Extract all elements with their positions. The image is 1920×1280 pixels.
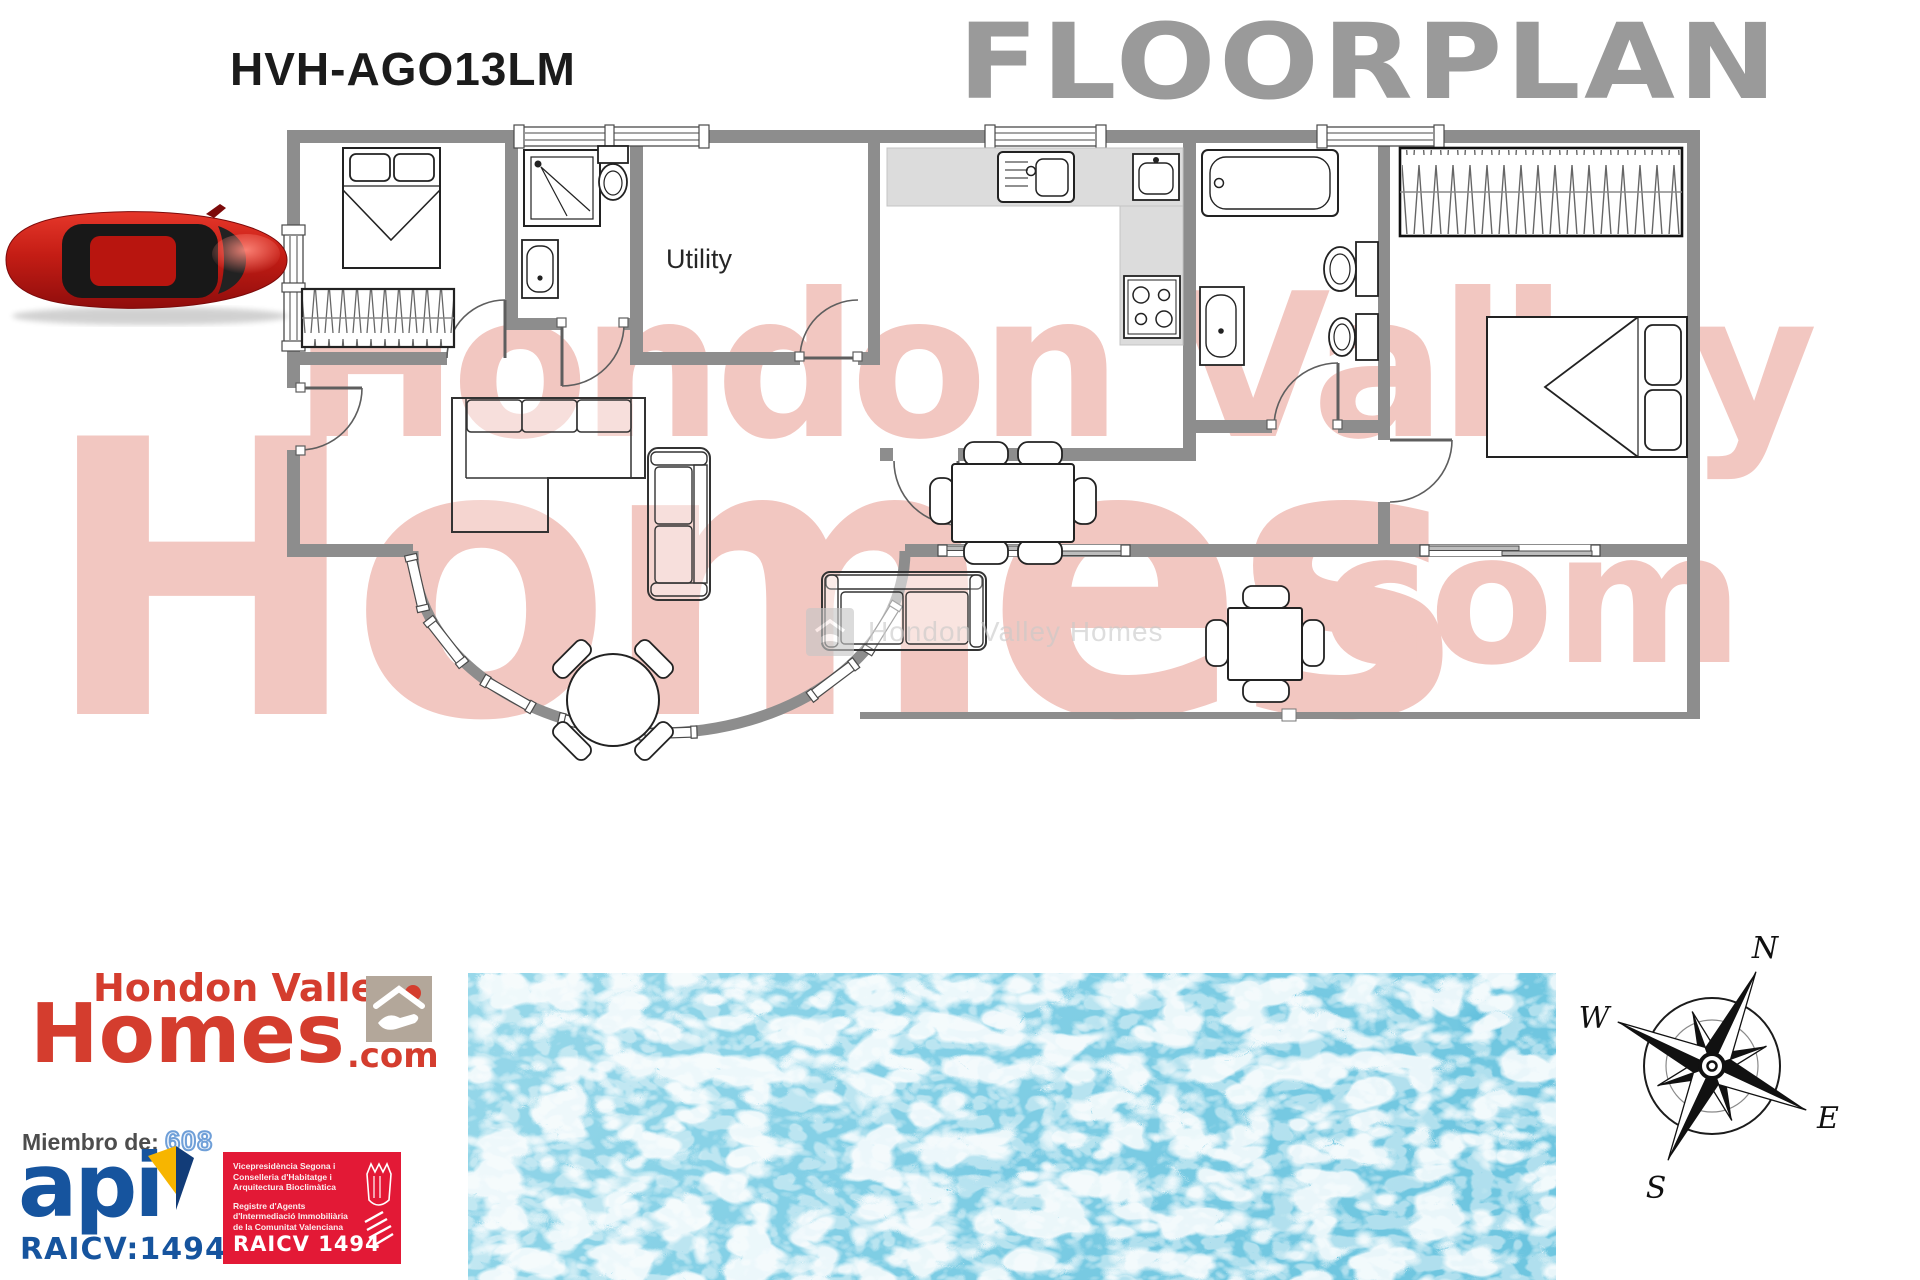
corner-sofa xyxy=(452,398,645,532)
sink-2 xyxy=(1200,287,1244,365)
kitchen-sink-drainer xyxy=(998,152,1074,202)
compass-north-label: N xyxy=(1751,931,1780,966)
bedroom-1 xyxy=(302,148,454,347)
master-bedroom xyxy=(1400,148,1687,457)
api-logo: api xyxy=(18,1146,162,1225)
bidet xyxy=(1329,314,1378,360)
terrace-table xyxy=(1206,586,1324,702)
sink-1 xyxy=(522,240,558,298)
door-bathroom2 xyxy=(1267,363,1342,429)
living-room xyxy=(452,398,1096,600)
raicv-number: RAICV:1494 xyxy=(20,1232,227,1267)
shower-room xyxy=(522,146,628,298)
wardrobe-1 xyxy=(302,289,454,347)
door-master-bedroom xyxy=(1390,440,1452,502)
toilet-1 xyxy=(598,146,628,200)
compass-rose: N W E S xyxy=(1575,925,1865,1225)
conservatory xyxy=(550,637,676,763)
center-watermark: Hondon Valley Homes xyxy=(806,608,1164,656)
page-title: FLOORPLAN xyxy=(958,10,1780,114)
door-shower-room xyxy=(557,318,628,386)
door-entrance xyxy=(296,383,362,455)
api-flag-icon xyxy=(146,1146,196,1226)
window-top-2 xyxy=(985,125,1106,148)
compass-east-label: E xyxy=(1816,1101,1839,1136)
car-roof xyxy=(90,236,176,286)
floorplan-drawing: Utility xyxy=(270,118,1720,778)
watermark-center-text: Hondon Valley Homes xyxy=(868,616,1164,648)
double-bed-master xyxy=(1487,317,1687,457)
compass-south-label: S xyxy=(1646,1171,1667,1206)
watermark-house-icon xyxy=(806,608,854,656)
window-top-3 xyxy=(1317,125,1444,148)
logo-dotcom: .com xyxy=(347,1036,439,1076)
door-utility xyxy=(795,300,862,361)
door-bedroom1 xyxy=(447,300,505,358)
toilet-2 xyxy=(1324,242,1378,296)
logo-homes: Homes xyxy=(30,994,345,1076)
car-shadow xyxy=(12,307,288,325)
window-top-1 xyxy=(514,125,709,148)
round-table xyxy=(567,654,659,746)
flyer-canvas: Hondon Valley Homes .com HVH-AGO13LM FLO… xyxy=(0,0,1920,1280)
swimming-pool-image xyxy=(468,973,1556,1280)
valencia-crest-icon xyxy=(361,1160,395,1256)
terrace-wall-gap xyxy=(1282,709,1296,721)
compass-west-label: W xyxy=(1579,1001,1612,1036)
bathroom-2 xyxy=(1200,150,1378,365)
straight-sofa xyxy=(648,448,710,600)
room-label-utility: Utility xyxy=(666,244,732,274)
kitchen-sink-small xyxy=(1133,154,1179,200)
bathtub xyxy=(1202,150,1338,216)
wardrobe-master xyxy=(1400,148,1682,236)
badge-code: RAICV 1494 xyxy=(233,1232,381,1256)
car-mirror-icon xyxy=(206,204,226,218)
raicv-badge: Vicepresidència Segona i Conselleria d'H… xyxy=(223,1152,401,1264)
car-hood-highlight xyxy=(212,234,280,274)
shower xyxy=(524,150,600,226)
double-bed-1 xyxy=(343,148,440,268)
kitchen xyxy=(887,148,1183,345)
sliding-door-master xyxy=(1420,545,1600,556)
red-car-image xyxy=(0,196,292,328)
logo-house-hand-icon xyxy=(366,976,432,1042)
kitchen-hob xyxy=(1124,276,1180,338)
property-reference: HVH-AGO13LM xyxy=(230,42,576,96)
